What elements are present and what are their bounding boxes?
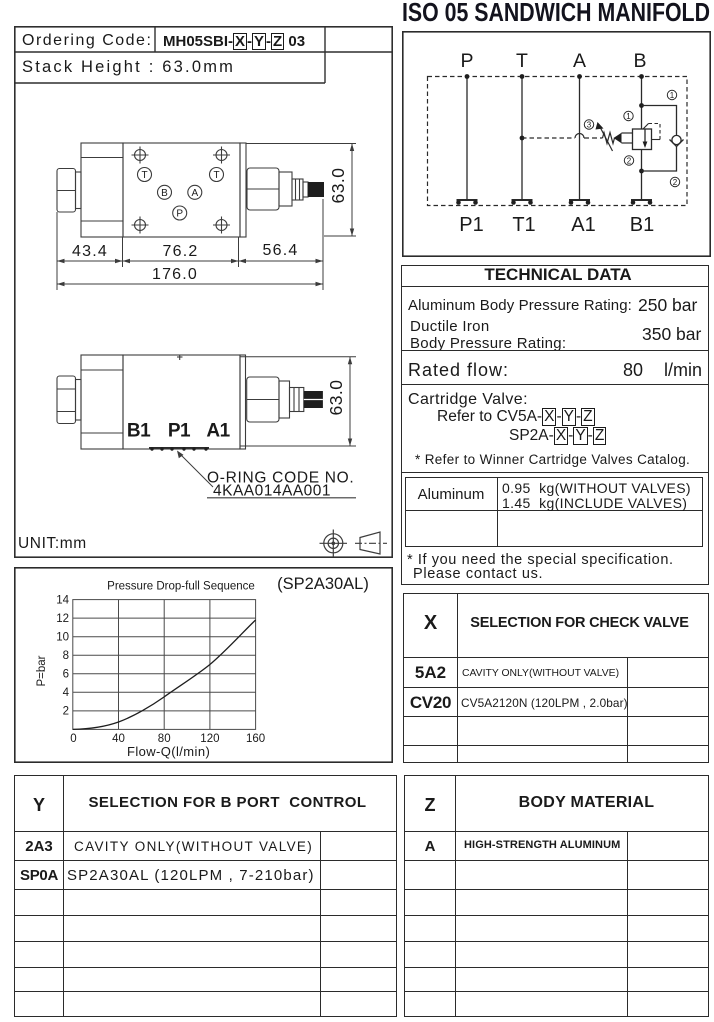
- svg-text:76.2: 76.2: [163, 243, 199, 260]
- svg-text:B: B: [633, 50, 646, 72]
- svg-text:P1: P1: [459, 214, 483, 236]
- svg-text:Pressure Drop-full Sequence: Pressure Drop-full Sequence: [107, 581, 255, 593]
- svg-text:4KAA014AA001: 4KAA014AA001: [213, 483, 331, 500]
- svg-text:1: 1: [670, 91, 675, 100]
- svg-text:4: 4: [63, 687, 70, 699]
- svg-text:40: 40: [112, 733, 125, 745]
- svg-text:UNIT:mm: UNIT:mm: [18, 535, 87, 552]
- svg-text:43.4: 43.4: [72, 243, 108, 260]
- svg-text:10: 10: [56, 632, 69, 644]
- svg-text:A1: A1: [206, 421, 230, 442]
- svg-text:T: T: [213, 170, 219, 181]
- svg-text:176.0: 176.0: [152, 266, 198, 283]
- svg-text:160: 160: [246, 733, 265, 745]
- svg-text:B: B: [161, 188, 168, 199]
- svg-text:8: 8: [63, 650, 69, 662]
- svg-text:T: T: [516, 50, 528, 72]
- svg-text:6: 6: [63, 669, 69, 681]
- svg-text:14: 14: [56, 595, 69, 607]
- svg-text:56.4: 56.4: [263, 242, 299, 259]
- svg-text:A: A: [191, 188, 198, 199]
- svg-text:T: T: [141, 170, 147, 181]
- svg-text:Flow-Q(l/min): Flow-Q(l/min): [127, 744, 210, 759]
- svg-text:1: 1: [626, 112, 631, 121]
- svg-text:2: 2: [673, 178, 678, 187]
- svg-text:T1: T1: [512, 214, 535, 236]
- svg-text:3: 3: [587, 121, 592, 130]
- svg-text:P: P: [176, 209, 183, 220]
- svg-text:(SP2A30AL): (SP2A30AL): [277, 575, 369, 593]
- svg-text:63.0: 63.0: [328, 167, 348, 203]
- svg-text:2: 2: [627, 157, 632, 166]
- svg-text:A: A: [573, 50, 586, 72]
- svg-text:12: 12: [56, 613, 69, 625]
- svg-text:P1: P1: [168, 421, 191, 442]
- svg-text:A1: A1: [571, 214, 595, 236]
- svg-text:P=bar: P=bar: [36, 655, 48, 686]
- svg-text:63.0: 63.0: [326, 379, 346, 415]
- svg-text:P: P: [460, 50, 473, 72]
- svg-text:B1: B1: [630, 214, 654, 236]
- svg-text:B1: B1: [127, 421, 151, 442]
- svg-text:2: 2: [63, 706, 69, 718]
- svg-text:0: 0: [70, 733, 76, 745]
